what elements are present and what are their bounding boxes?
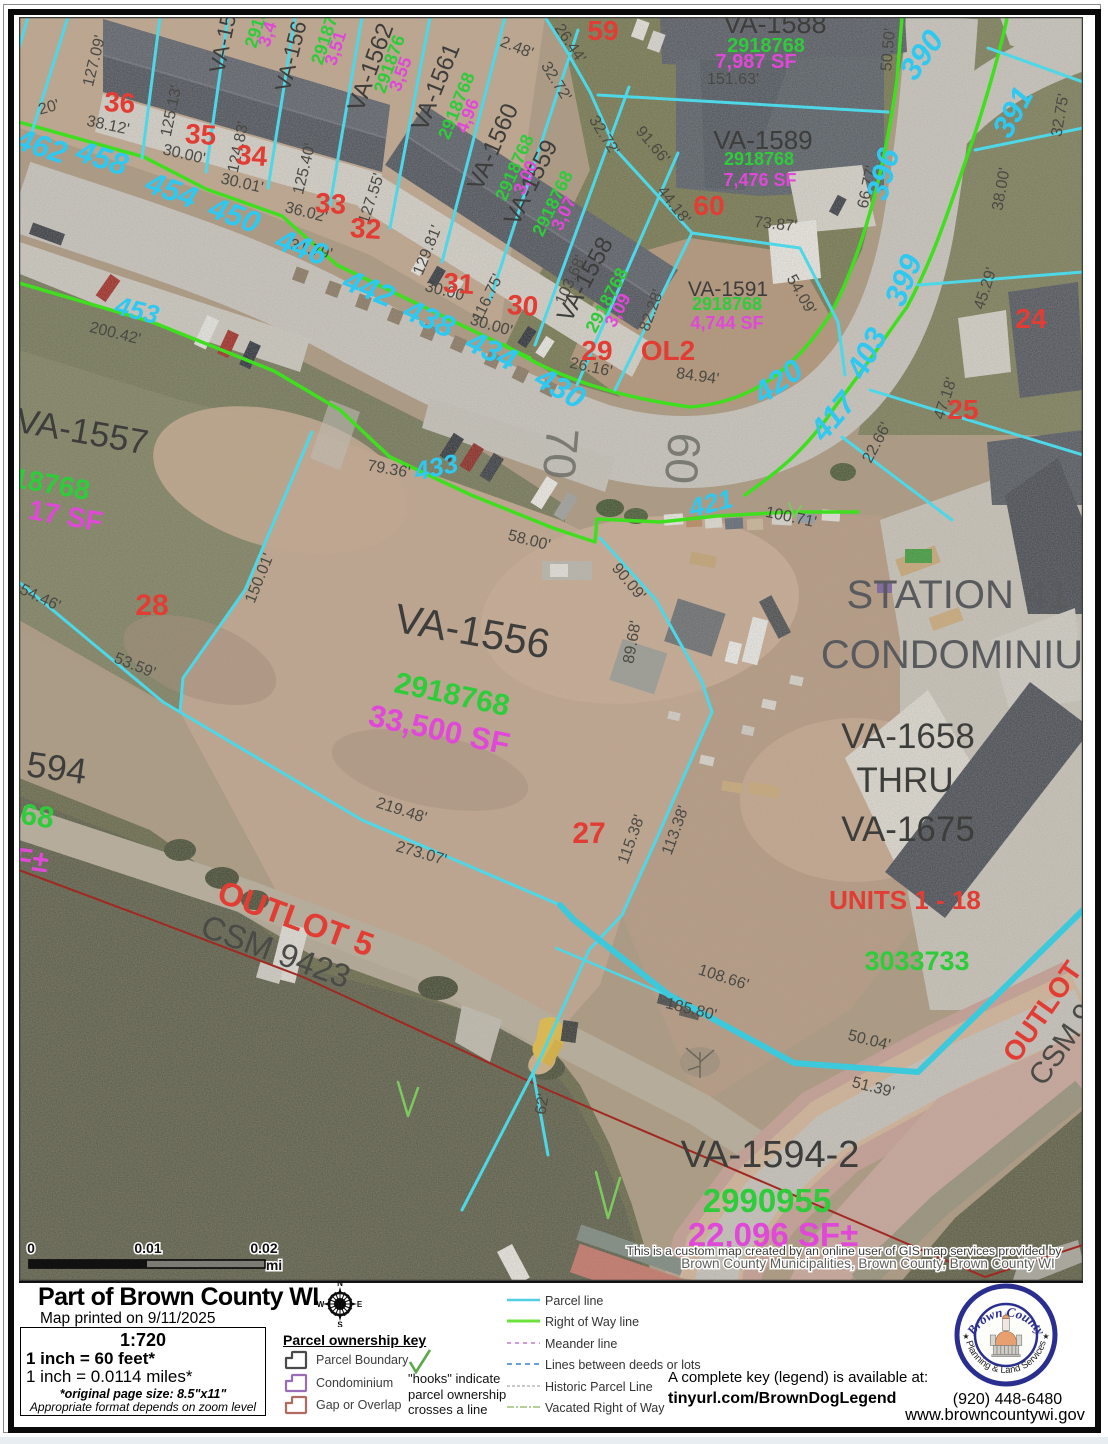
svg-text:594: 594 [24,743,89,792]
svg-text:2918768: 2918768 [692,294,762,314]
svg-text:UNITS 1 - 18: UNITS 1 - 18 [829,885,981,915]
svg-text:4,744 SF: 4,744 SF [690,313,763,333]
svg-text:35: 35 [184,118,217,151]
svg-text:62': 62' [532,1092,552,1115]
svg-text:68: 68 [19,798,56,835]
svg-text:30: 30 [506,289,539,322]
svg-text:2990955: 2990955 [703,1182,831,1219]
svg-text:STATION 41: STATION 41 [846,573,1069,617]
svg-text:3033733: 3033733 [864,946,969,976]
svg-text:VA-1594-2: VA-1594-2 [681,1134,860,1176]
svg-text:70: 70 [533,426,589,482]
svg-text:60: 60 [693,190,724,221]
svg-text:★: ★ [962,1332,969,1341]
svg-text:0: 0 [27,1240,35,1256]
svg-text:7,476 SF: 7,476 SF [723,170,796,190]
svg-text:0.01: 0.01 [134,1240,161,1256]
svg-text:CONDOMINIU: CONDOMINIU [821,633,1083,677]
svg-text:59: 59 [587,17,618,46]
svg-text:OL2: OL2 [641,335,695,366]
svg-text:24: 24 [1015,303,1047,334]
svg-text:32: 32 [349,212,382,245]
svg-text:VA-1658: VA-1658 [841,717,975,756]
svg-text:2918768: 2918768 [724,149,794,169]
svg-text:28: 28 [135,589,168,622]
svg-text:Brown County Municipalities, B: Brown County Municipalities, Brown Count… [681,1256,1054,1271]
svg-text:F±: F± [19,842,51,880]
svg-text:151.63': 151.63' [707,71,759,88]
svg-text:34: 34 [235,139,269,172]
svg-text:S: S [337,1321,343,1328]
svg-text:★: ★ [1042,1332,1049,1341]
svg-text:THRU: THRU [856,761,953,800]
svg-text:E: E [357,1300,363,1309]
svg-text:mi: mi [266,1257,282,1273]
svg-text:36: 36 [103,86,136,119]
svg-text:7,987 SF: 7,987 SF [715,51,796,73]
svg-text:29: 29 [581,335,612,366]
svg-text:0.02: 0.02 [250,1240,277,1256]
svg-text:27: 27 [572,817,605,850]
svg-text:25: 25 [947,394,978,425]
svg-text:60: 60 [655,431,711,487]
svg-text:W: W [317,1300,325,1309]
svg-text:33: 33 [314,187,347,220]
svg-text:VA-1675: VA-1675 [841,810,975,849]
svg-text:N: N [337,1281,343,1288]
svg-text:31: 31 [442,267,475,300]
